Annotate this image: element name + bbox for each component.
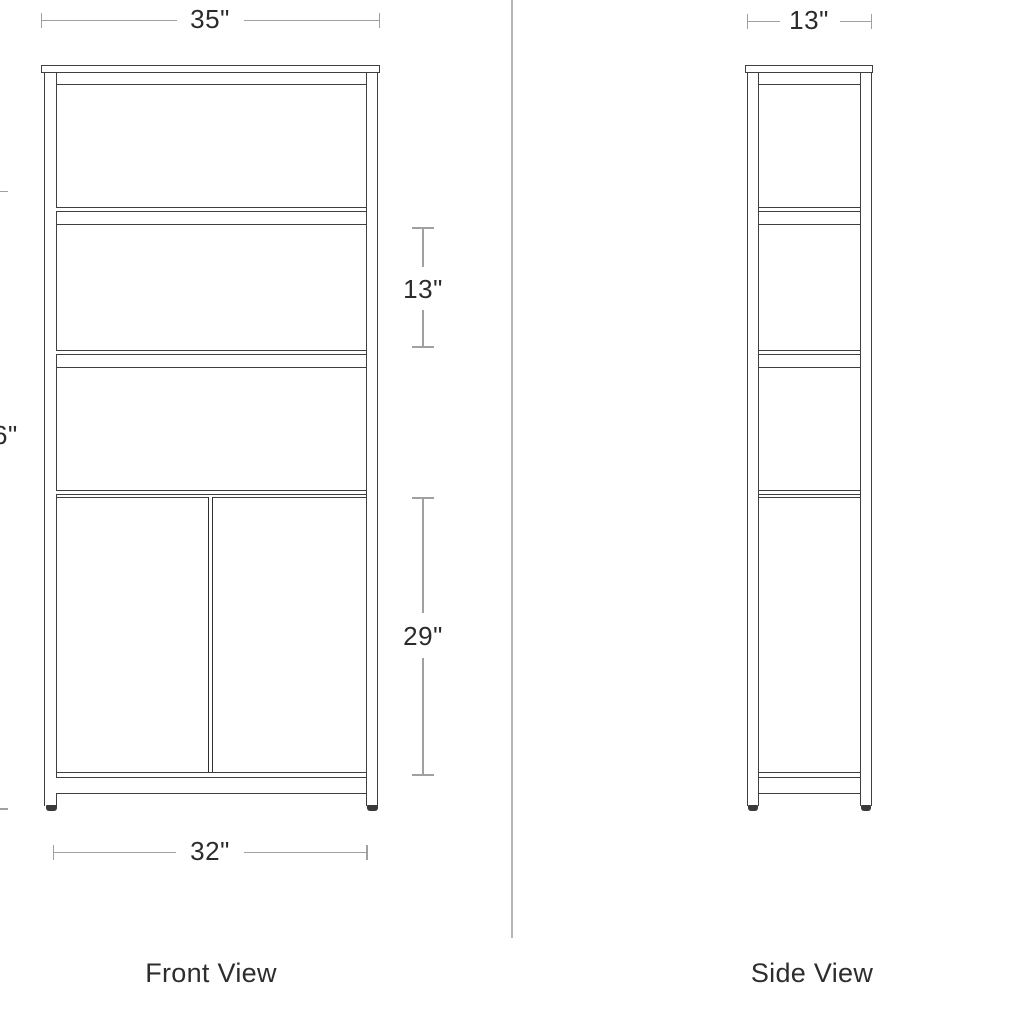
front-top-rail-line — [56, 84, 366, 86]
side-depth-dimension: 13" — [512, 0, 1024, 40]
dimension-diagram: 35" 6" — [0, 0, 1024, 1024]
front-shelf-spacing-dimension: 13" — [380, 200, 470, 370]
side-view: 13" Side View — [512, 0, 1024, 1024]
front-shelf-1-apron-line — [56, 224, 366, 226]
front-shelf-2-surface — [56, 350, 366, 355]
side-left-leg — [747, 73, 759, 806]
dimension-tick — [412, 346, 434, 348]
front-bottom-rail — [56, 777, 366, 794]
front-shelf-1-surface — [56, 207, 366, 212]
front-right-foot — [367, 805, 378, 811]
side-shelf-1-surface — [759, 207, 860, 212]
dimension-tick — [0, 808, 8, 810]
front-desk-surface — [56, 490, 366, 495]
dimension-line — [840, 21, 871, 23]
front-top-slab — [41, 65, 380, 73]
front-left-height-value: 6" — [0, 420, 37, 450]
side-top-slab — [745, 65, 873, 73]
front-shelf-2-apron-line — [56, 367, 366, 369]
dimension-tick — [0, 191, 8, 193]
dimension-tick — [379, 13, 381, 28]
dimension-line — [244, 852, 367, 854]
side-right-foot — [861, 805, 872, 811]
side-view-label: Side View — [702, 957, 922, 989]
side-left-foot — [748, 805, 759, 811]
side-bottom-rail — [759, 777, 860, 794]
side-shelf-2-apron-line — [759, 367, 860, 369]
side-shelf-2-surface — [759, 350, 860, 355]
front-right-leg — [366, 73, 379, 806]
dimension-line — [422, 229, 424, 267]
front-left-foot — [46, 805, 57, 811]
side-depth-value: 13" — [778, 5, 840, 35]
front-view-label: Front View — [101, 957, 321, 989]
front-top-width-dimension: 35" — [0, 0, 512, 40]
front-shelf-spacing-value: 13" — [391, 274, 455, 304]
front-left-leg — [44, 73, 57, 806]
dimension-line — [747, 21, 780, 23]
dimension-line — [422, 310, 424, 346]
front-door-center-divider — [208, 497, 213, 773]
dimension-line — [422, 658, 424, 774]
front-view: 35" 6" — [0, 0, 512, 1024]
front-door-bottom-line — [56, 772, 366, 774]
side-panel-bottom-line — [759, 772, 860, 774]
side-shelf-1-apron-line — [759, 224, 860, 226]
front-cabinet-height-dimension: 29" — [380, 490, 470, 785]
dimension-line — [422, 499, 424, 613]
dimension-tick — [871, 14, 873, 29]
dimension-line — [244, 20, 379, 22]
dimension-tick — [366, 845, 368, 860]
side-desk-bottom-line — [759, 497, 860, 499]
front-cabinet-height-value: 29" — [391, 621, 455, 651]
side-desk-surface — [759, 490, 860, 495]
side-top-rail-line — [759, 84, 860, 86]
dimension-tick — [412, 774, 434, 776]
side-right-leg — [860, 73, 872, 806]
front-bottom-width-dimension: 32" — [0, 830, 512, 870]
